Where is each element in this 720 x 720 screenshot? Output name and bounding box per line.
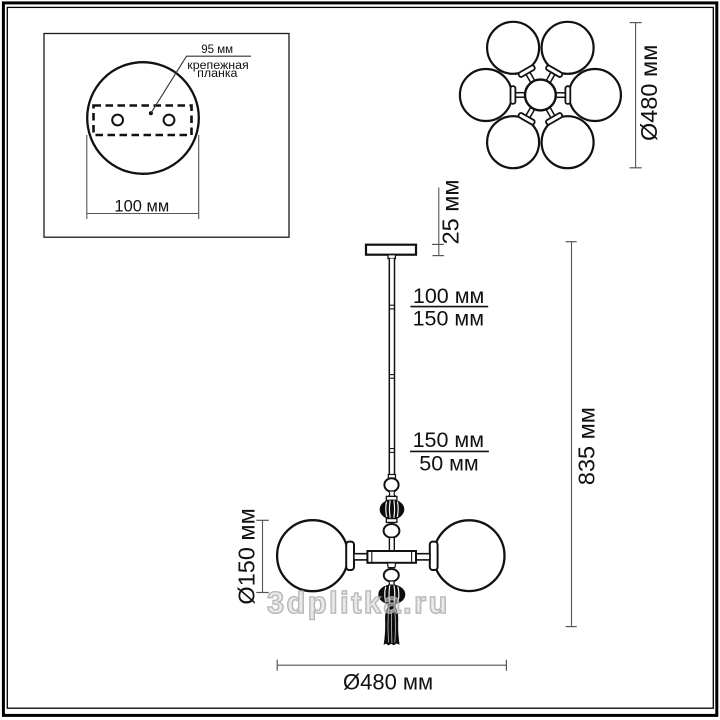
svg-text:100 мм: 100 мм — [114, 198, 169, 216]
svg-text:планка: планка — [197, 66, 237, 80]
svg-text:150 мм: 150 мм — [413, 428, 484, 452]
svg-text:100 мм: 100 мм — [413, 284, 484, 308]
svg-text:50 мм: 50 мм — [419, 452, 478, 476]
svg-text:150 мм: 150 мм — [413, 307, 484, 331]
svg-text:Ø150 мм: Ø150 мм — [234, 508, 260, 604]
svg-text:Ø480 мм: Ø480 мм — [343, 670, 433, 695]
svg-text:25 мм: 25 мм — [438, 179, 464, 244]
svg-text:95 мм: 95 мм — [201, 44, 233, 56]
svg-text:835 мм: 835 мм — [574, 407, 600, 485]
svg-text:Ø480 мм: Ø480 мм — [636, 45, 662, 141]
svg-text:3dplitka.ru: 3dplitka.ru — [267, 586, 450, 620]
